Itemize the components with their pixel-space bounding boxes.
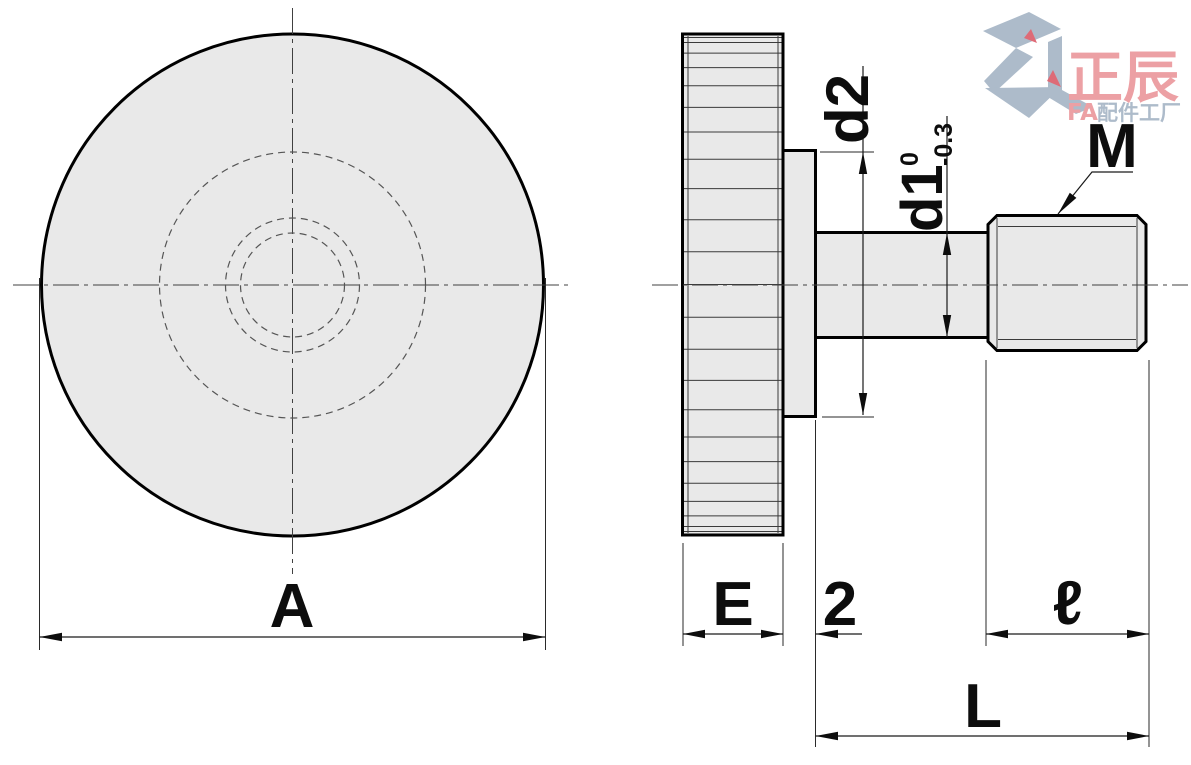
thread-callout: M [1058,112,1138,214]
dim-thread-len-arrow-left [986,630,1008,638]
dimension-neck: 2 [816,420,863,747]
dimension-thread-length: ℓ [986,360,1149,747]
brand-logo: 正辰 FA 配件工厂 [983,12,1181,126]
logo-mark-l-stem [1048,36,1062,97]
dim-a-arrow-right [523,633,546,641]
dim-d1-tolerance-lower: -0.3 [930,123,958,166]
dim-neck-label: 2 [823,570,857,639]
side-view: d2 d1 0 -0.3 M E [652,34,1188,747]
step-boss [783,151,816,417]
dim-e-arrow-right [761,630,783,638]
dimension-total-length: L [816,672,1150,741]
front-view: A [13,8,572,650]
dim-d1-tolerance-upper: 0 [896,152,924,166]
dim-d2-arrow-bottom [859,393,867,415]
thread-leader-arrow [1058,193,1076,214]
logo-fa-text: FA [1067,100,1098,126]
dim-thread-len-arrow-right [1127,630,1149,638]
technical-drawing: A d2 d1 [0,0,1191,765]
threaded-end [988,216,1146,351]
dim-e-label: E [712,570,753,639]
dim-a-label: A [270,572,315,641]
logo-mark-diagonal [984,48,1033,93]
dim-total-len-label: L [964,672,1002,741]
dimension-e: E [683,543,783,646]
drawing-canvas: A d2 d1 [0,0,1191,765]
dim-thread-len-extension-lines [986,360,1149,747]
logo-suffix-text: 配件工厂 [1097,101,1181,125]
dim-d1-label: d1 [890,164,955,232]
dim-total-len-arrow-right [1127,732,1149,740]
dim-total-len-arrow-left [816,732,839,740]
dim-thread-len-label: ℓ [1053,569,1083,638]
dim-d2-arrow-top [859,152,867,174]
dim-a-arrow-left [40,633,63,641]
dim-e-arrow-left [683,630,705,638]
dim-d2-label: d2 [814,74,881,144]
